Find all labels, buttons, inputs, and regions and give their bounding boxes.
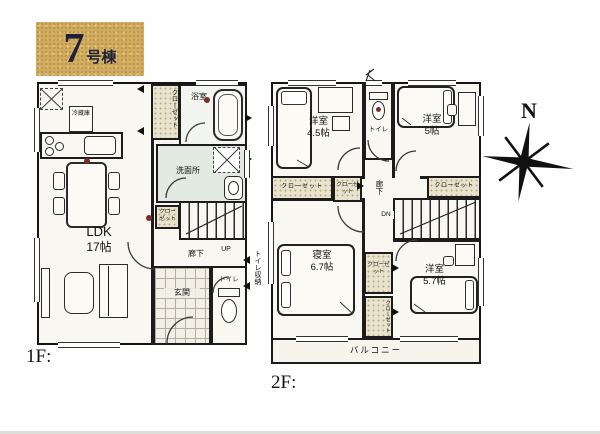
bed-pillow	[281, 250, 291, 276]
floor2-closet-west-label: クローゼット	[273, 184, 331, 192]
stairs-1f	[179, 201, 247, 240]
desk	[458, 92, 476, 126]
desk	[318, 87, 353, 113]
balcony-label: バルコニー	[321, 345, 431, 356]
toilet-label-1f: トイレ	[214, 276, 244, 284]
room-ne-name: 洋室	[408, 114, 456, 126]
building-number-badge: 7 号棟	[36, 22, 144, 76]
washroom-label: 洗面所	[167, 166, 209, 176]
interior-wall	[151, 138, 154, 204]
window	[478, 96, 484, 136]
floor2-closet-c2: クローゼット	[364, 296, 393, 338]
sliding-door	[400, 336, 458, 342]
sofa	[99, 264, 128, 318]
room-nw-label: 洋室 4.5帖	[291, 116, 346, 140]
window	[58, 80, 113, 86]
window	[196, 80, 238, 86]
refrigerator: 冷蔵庫	[69, 106, 93, 132]
floor2-closet-west: クローゼット	[271, 176, 333, 200]
building-number-suffix: 号棟	[86, 46, 116, 67]
stove-burner-icon	[45, 147, 54, 156]
compass-rose-icon	[477, 117, 579, 209]
room-nw-size: 4.5帖	[291, 128, 346, 140]
compass-ns-needle	[514, 122, 534, 202]
sofa-seam	[108, 266, 109, 316]
room-se-label: 洋室 5.7帖	[407, 264, 462, 288]
chair	[53, 197, 65, 215]
window	[288, 80, 336, 86]
room-ne-label: 洋室 5帖	[408, 114, 456, 138]
wall-arrow-icon	[245, 114, 252, 122]
window	[34, 238, 40, 302]
room-se-size: 5.7帖	[407, 276, 462, 288]
kitchen-sink	[84, 136, 116, 155]
sliding-door	[296, 336, 348, 342]
desk	[455, 244, 475, 266]
stairs-2f	[393, 198, 481, 240]
stove-burner-icon	[55, 142, 64, 151]
kitchen-dashed-fixture	[40, 88, 63, 110]
floor2-closet-c1: クローゼット	[364, 252, 393, 294]
ldk-label: LDK 17帖	[68, 224, 130, 255]
room-nw-name: 洋室	[291, 116, 346, 128]
toilet-storage-label: トイレ収納	[252, 250, 262, 285]
floorplan-sheet: 7 号棟 冷蔵庫 クローゼット 浴室 洗面所 LDK 17帖 クローゼット	[0, 0, 600, 434]
dining-table	[66, 162, 107, 228]
entrance-label: 玄関	[164, 288, 200, 298]
floor1-closet-tall: クローゼット	[151, 84, 180, 140]
room-se-name: 洋室	[407, 264, 462, 276]
dn-label: DN	[378, 211, 394, 219]
alarm-dot	[204, 97, 210, 103]
toilet-bowl-1f	[221, 299, 237, 323]
building-number: 7	[63, 28, 84, 70]
bedroom-label: 寝室 6.7帖	[293, 250, 351, 274]
window	[244, 150, 250, 178]
callout-arrow-icon	[357, 182, 364, 190]
wash-basin-bowl	[228, 181, 239, 195]
alarm-dot	[84, 158, 90, 164]
floor1-label: 1F:	[26, 346, 51, 368]
window	[408, 80, 456, 86]
floor2-closet-east-label: クローゼット	[429, 183, 479, 191]
compass-ew-needle	[482, 152, 574, 174]
chair	[108, 197, 120, 215]
bedroom-size: 6.7帖	[293, 262, 351, 274]
wall-arrow-icon	[137, 85, 144, 93]
up-label: UP	[216, 246, 236, 255]
compass-north-label: N	[521, 98, 537, 124]
chair	[53, 172, 65, 190]
window	[366, 80, 382, 86]
window	[478, 258, 484, 306]
window	[34, 108, 40, 152]
floor2-closet-c2-label: クローゼット	[366, 300, 391, 333]
washing-machine-pan	[213, 147, 240, 173]
callout-arrow-icon	[243, 256, 250, 264]
bed-pillow	[465, 280, 474, 310]
compass-diagonals	[499, 137, 549, 187]
chair	[108, 172, 120, 190]
tv-board	[41, 268, 50, 318]
callout-arrow-icon	[392, 264, 399, 272]
alarm-dot	[376, 107, 381, 112]
stove-burner-icon	[45, 136, 54, 145]
entrance-genkan	[153, 266, 211, 345]
callout-arrow-icon	[392, 308, 399, 316]
living-table	[64, 272, 94, 314]
window	[58, 342, 120, 348]
floor1-closet-tall-label: クローゼット	[153, 89, 178, 128]
room-ne-size: 5帖	[408, 126, 456, 138]
toilet-label-2f: トイレ	[364, 126, 393, 134]
toilet-tank-1f	[218, 288, 240, 297]
callout-arrow-icon	[243, 282, 250, 290]
floor1-hall-closet: クローゼット	[155, 205, 180, 229]
hall-label-2f: 廊下	[374, 180, 385, 195]
bed-pillow	[281, 91, 307, 105]
ldk-size: 17帖	[68, 240, 130, 255]
window	[268, 222, 274, 284]
alarm-dot	[146, 215, 152, 221]
hall-label-1f: 廊下	[182, 249, 210, 259]
toilet-tank-2f	[369, 92, 388, 100]
wall-arrow-icon	[137, 127, 144, 135]
bathtub-inner	[218, 94, 238, 136]
ldk-name: LDK	[68, 224, 130, 240]
bed-pillow	[281, 282, 291, 308]
floor2-closet-east: クローゼット	[427, 176, 481, 198]
window	[268, 106, 274, 146]
bedroom-name: 寝室	[293, 250, 351, 262]
floor2-label: 2F:	[271, 372, 296, 394]
